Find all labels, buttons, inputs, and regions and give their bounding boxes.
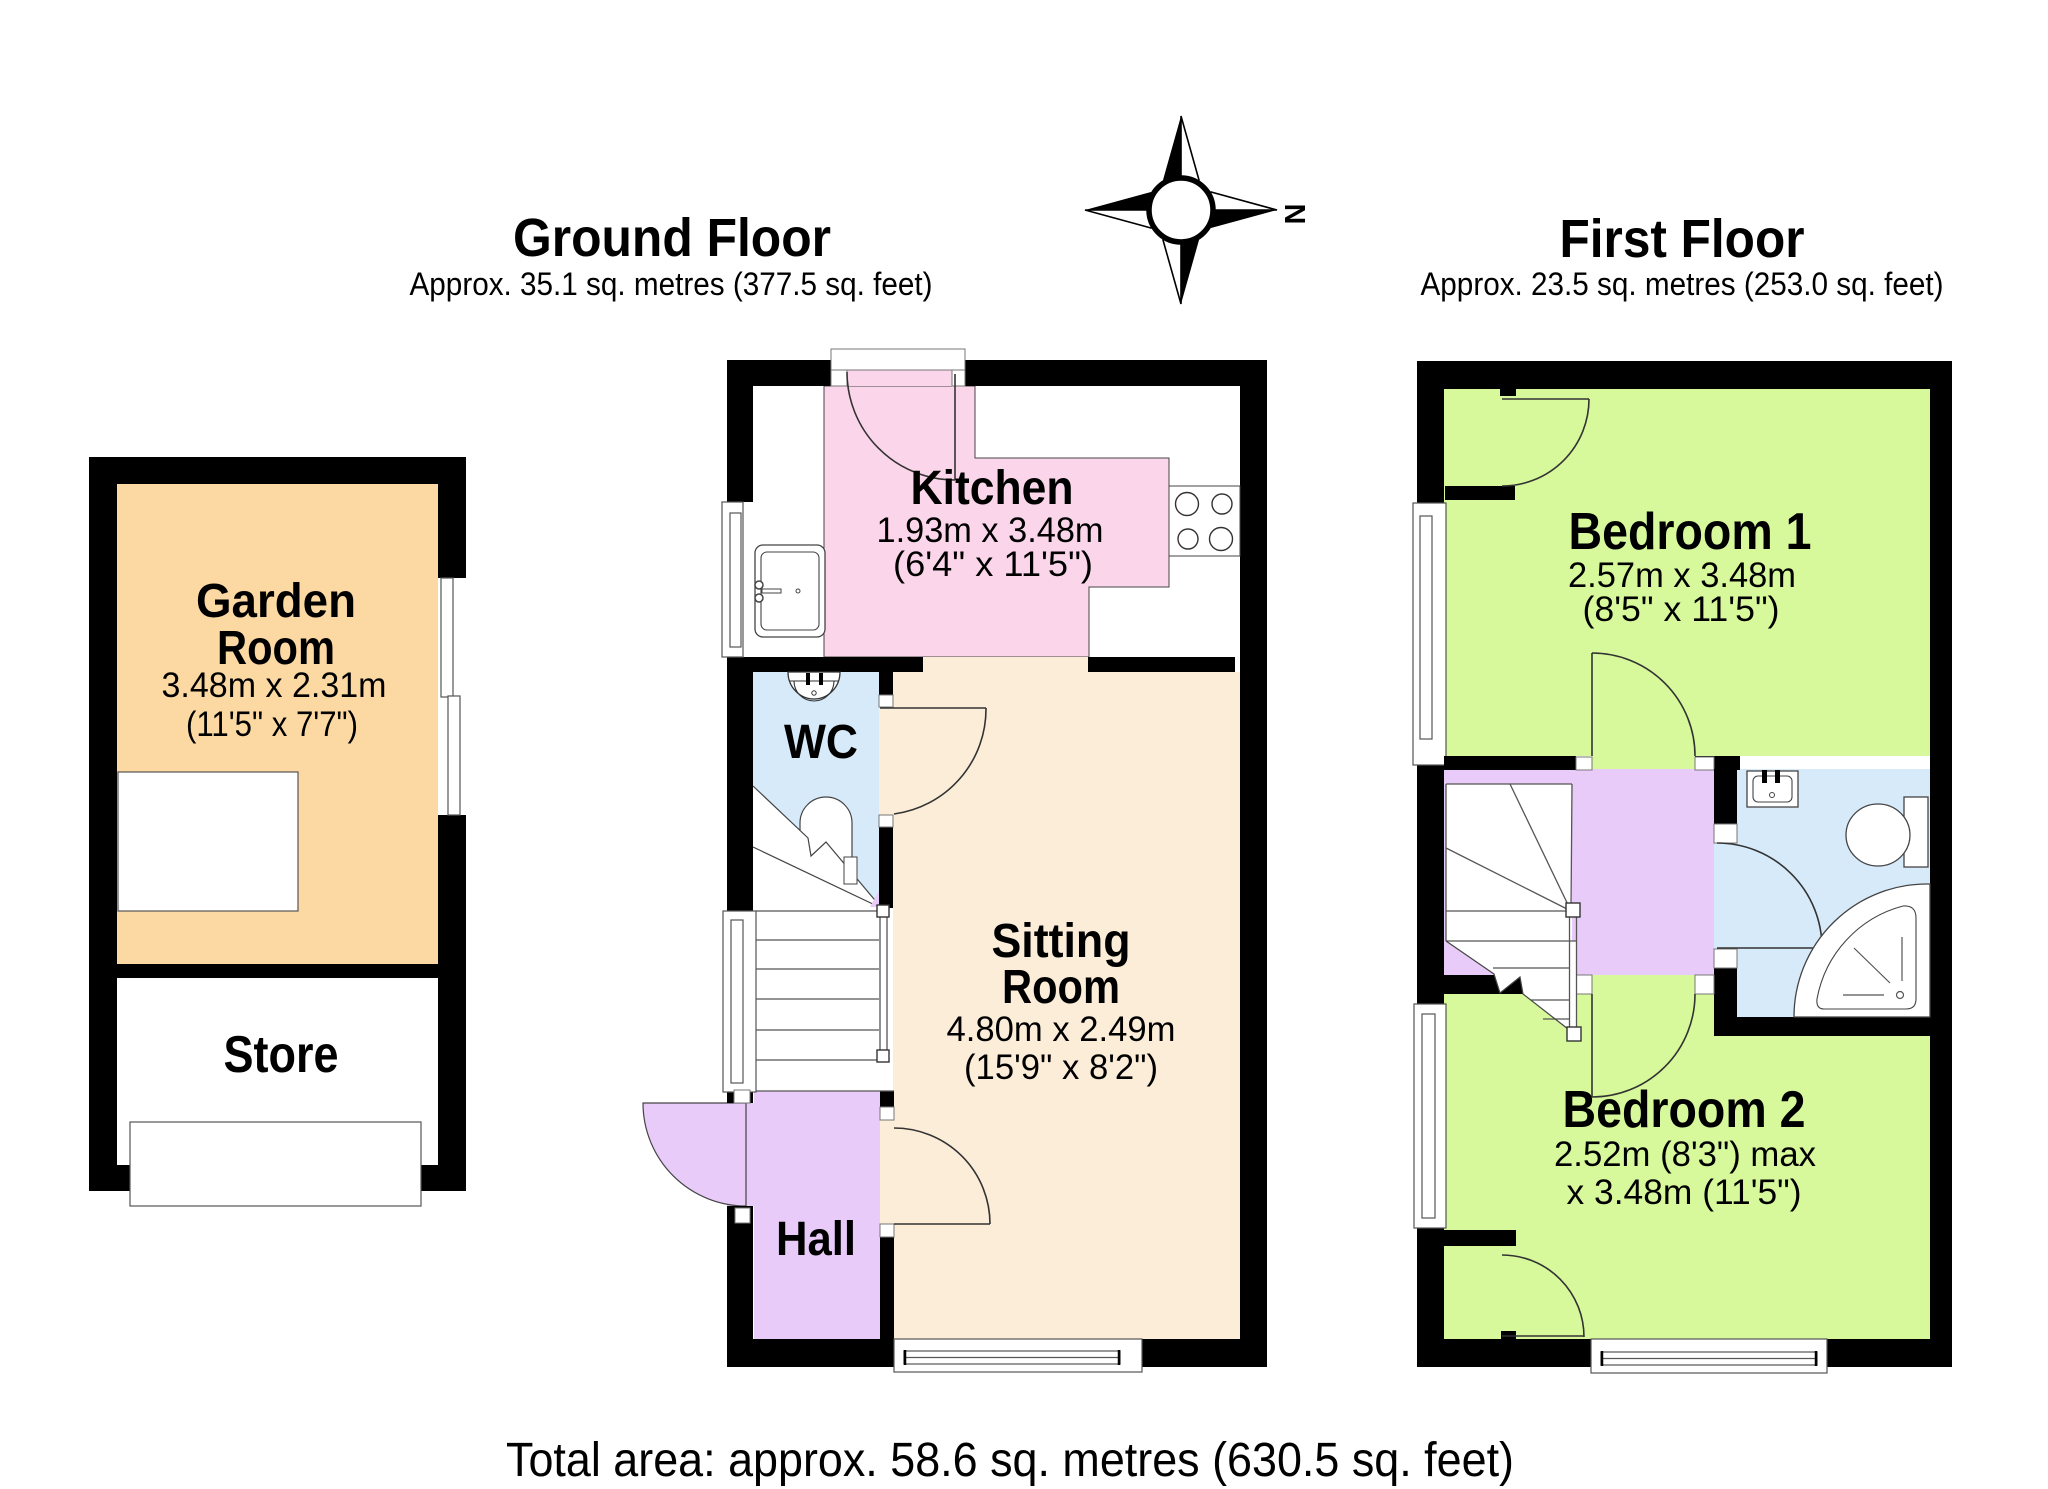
svg-text:Approx. 35.1 sq. metres (377.5: Approx. 35.1 sq. metres (377.5 sq. feet) xyxy=(410,266,933,302)
svg-text:Room: Room xyxy=(1002,961,1120,1014)
svg-text:4.80m x 2.49m: 4.80m x 2.49m xyxy=(947,1010,1176,1049)
svg-text:N: N xyxy=(1278,204,1310,225)
svg-text:Bedroom 2: Bedroom 2 xyxy=(1563,1081,1806,1139)
svg-text:Garden: Garden xyxy=(196,575,356,628)
svg-text:x 3.48m (11'5"): x 3.48m (11'5") xyxy=(1567,1173,1802,1212)
svg-text:Kitchen: Kitchen xyxy=(911,462,1074,515)
svg-text:(15'9" x 8'2"): (15'9" x 8'2") xyxy=(964,1048,1158,1087)
svg-text:Ground Floor: Ground Floor xyxy=(513,208,831,268)
svg-text:(8'5" x 11'5"): (8'5" x 11'5") xyxy=(1583,590,1780,629)
svg-text:3.48m x 2.31m: 3.48m x 2.31m xyxy=(162,666,387,705)
svg-text:Bedroom 1: Bedroom 1 xyxy=(1569,503,1812,561)
svg-text:WC: WC xyxy=(784,716,858,769)
svg-text:2.52m (8'3") max: 2.52m (8'3") max xyxy=(1554,1135,1816,1174)
svg-text:(6'4" x 11'5"): (6'4" x 11'5") xyxy=(893,545,1093,584)
svg-text:Store: Store xyxy=(224,1026,339,1084)
svg-text:Hall: Hall xyxy=(776,1213,856,1266)
svg-text:First Floor: First Floor xyxy=(1560,209,1805,269)
svg-text:(11'5" x 7'7"): (11'5" x 7'7") xyxy=(186,705,358,744)
svg-text:Total area: approx. 58.6 sq. m: Total area: approx. 58.6 sq. metres (630… xyxy=(506,1434,1514,1487)
svg-text:Approx. 23.5 sq. metres (253.0: Approx. 23.5 sq. metres (253.0 sq. feet) xyxy=(1421,266,1944,302)
